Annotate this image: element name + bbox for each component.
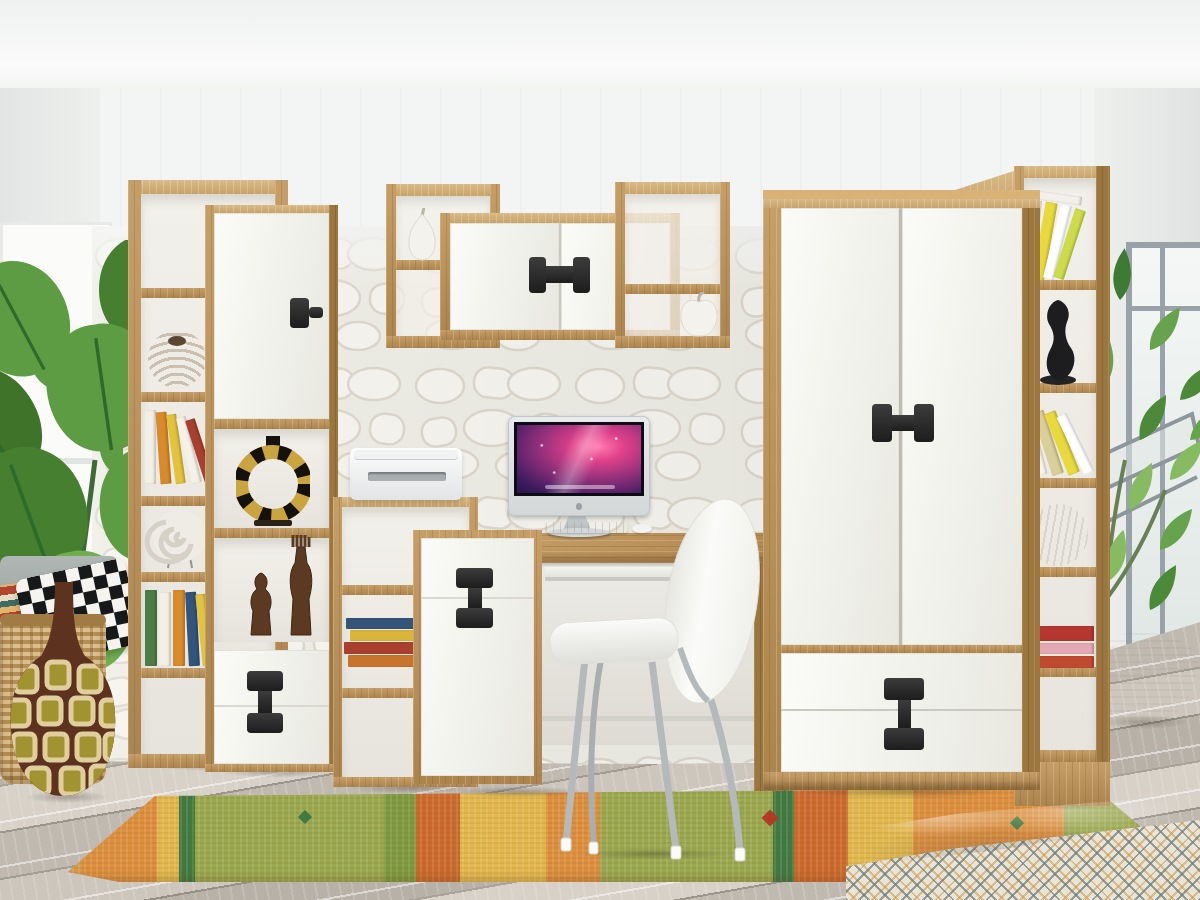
black-figurine [1034, 296, 1082, 386]
ethnic-ring [236, 434, 310, 528]
wall-shelf-right-top [615, 182, 730, 194]
book-spine [159, 592, 171, 666]
wardrobe-divider [781, 645, 1022, 653]
drawer-handle-cap [247, 713, 283, 733]
ceiling [0, 0, 1200, 92]
wardrobe-topface [763, 190, 1040, 199]
right-bookcase-side [1096, 166, 1110, 806]
wardrobe-stile [1022, 208, 1040, 772]
printer-slot [368, 472, 446, 481]
room-scene [0, 0, 1200, 900]
pedestal-handle-cap [456, 608, 493, 628]
seashell [144, 506, 214, 572]
wardrobe-drawer-handle-cap [884, 728, 924, 750]
wardrobe-handle-bar [872, 404, 892, 442]
rattan-ball-hole [168, 336, 186, 346]
book-spine [145, 410, 156, 484]
wardrobe-topedge [763, 199, 1040, 208]
book-spine [145, 590, 157, 666]
wall-cabinet-side [440, 213, 450, 340]
wardrobe-base [763, 772, 1040, 790]
floor-vase [5, 578, 123, 804]
wall-shelf-left-side [386, 184, 396, 348]
wall-shelf-right-side [720, 182, 730, 348]
column-top [205, 205, 338, 213]
book-spine [173, 590, 185, 666]
column-door-handle [290, 298, 309, 328]
ladder-shelf-side [333, 497, 342, 787]
left-bookcase-top [128, 180, 288, 194]
wardrobe-handle-mid [892, 415, 914, 431]
wardrobe-stile [763, 208, 781, 772]
cabinet-handle-bar [573, 257, 590, 293]
column-side [205, 205, 214, 772]
pear-figurine [404, 208, 440, 262]
chair [540, 486, 780, 862]
pedestal-handle-cap [456, 568, 493, 588]
cabinet-handle-mid [546, 266, 573, 283]
apple-figurine [678, 292, 720, 338]
screen-wallpaper [517, 425, 641, 493]
wall-shelf-left-top [386, 184, 500, 196]
wardrobe-drawer-handle-bar [898, 700, 911, 728]
shelf [214, 419, 329, 429]
cabinet-handle-bar [529, 257, 546, 293]
wooden-figurines [243, 535, 315, 641]
wardrobe-drawer-handle-cap [884, 678, 924, 700]
printer-lid [354, 450, 458, 460]
wall-shelf-right-side [615, 182, 625, 348]
drawer-handle-bar [258, 691, 272, 713]
wardrobe-handle-bar [914, 404, 934, 442]
left-bookcase-side [128, 180, 141, 768]
pedestal-handle-bar [468, 588, 482, 608]
drawer-handle-cap [247, 671, 283, 691]
column-bottom [205, 764, 338, 772]
column-door-handle-stem [309, 307, 323, 318]
